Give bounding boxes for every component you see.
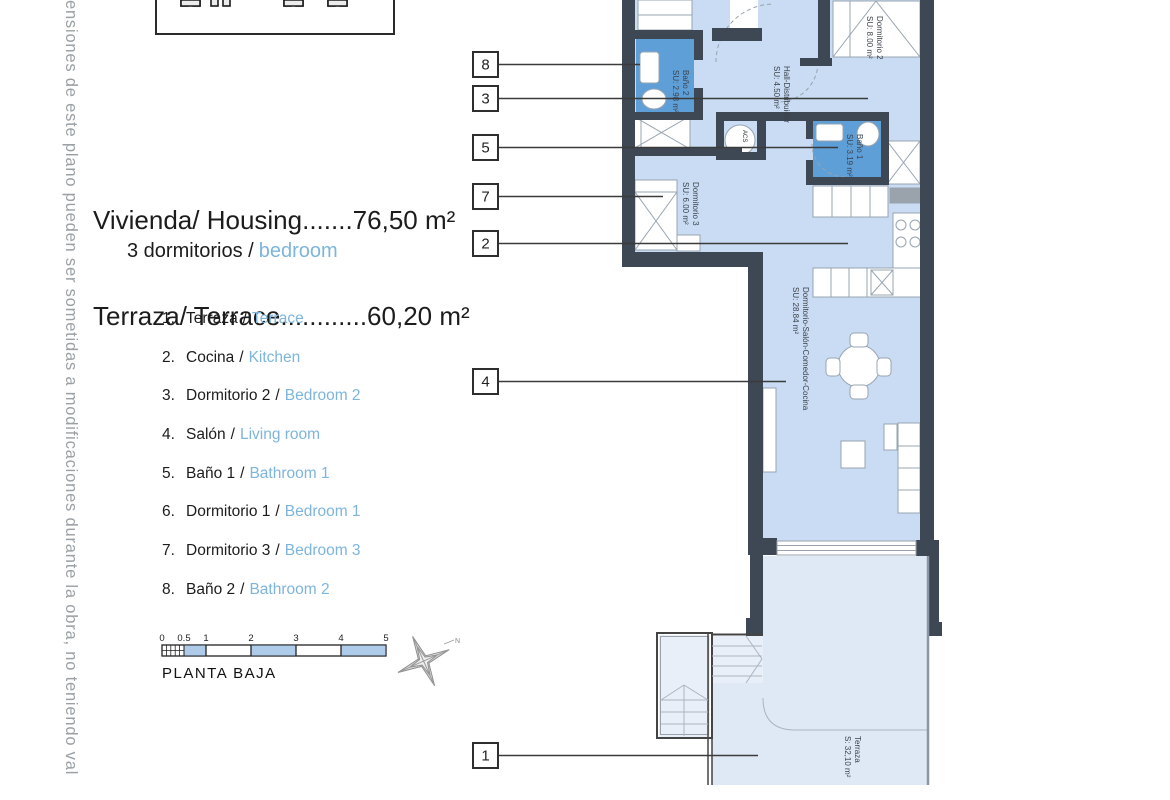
chair: [877, 358, 891, 376]
label-dormitorio2: Dormitorio 2 SU: 8.00 m²: [865, 16, 884, 62]
terrace: [657, 556, 928, 785]
callout-3: 3: [473, 86, 498, 111]
svg-text:1: 1: [481, 748, 489, 765]
svg-text:2: 2: [481, 236, 489, 253]
callout-2: 2: [473, 231, 498, 256]
sliding-door: [777, 541, 916, 555]
svg-text:5: 5: [481, 140, 489, 157]
callout-8: 8: [473, 52, 498, 77]
kitchen-block: [890, 188, 920, 203]
chair: [826, 358, 840, 376]
kitchen-counter: [813, 268, 923, 297]
callout-1: 1: [473, 743, 498, 768]
callout-boxes: 8 3 5 7 2 4 1: [473, 52, 498, 768]
bed-dormitorio3: [635, 180, 677, 250]
chair: [850, 333, 868, 347]
window-ledge: [763, 388, 776, 472]
svg-text:7: 7: [481, 189, 489, 206]
coffee-table: [841, 441, 865, 468]
sink-bano1: [816, 124, 843, 141]
floor-plan: Dormitorio 2 SU: 8.00 m² Hall-Distribuid…: [0, 0, 1170, 785]
callout-5: 5: [473, 135, 498, 160]
svg-text:3: 3: [481, 91, 489, 108]
svg-text:4: 4: [481, 374, 489, 391]
dining-table: [838, 345, 880, 387]
chair: [850, 385, 868, 399]
svg-text:8: 8: [481, 57, 489, 74]
label-acs: ACS: [741, 130, 747, 142]
side-table: [884, 424, 897, 450]
callout-7: 7: [473, 184, 498, 209]
label-dormitorio3: Dormitorio 3 SU: 6.00 m²: [681, 182, 700, 228]
callout-4: 4: [473, 369, 498, 394]
sink-bano2: [640, 52, 659, 83]
